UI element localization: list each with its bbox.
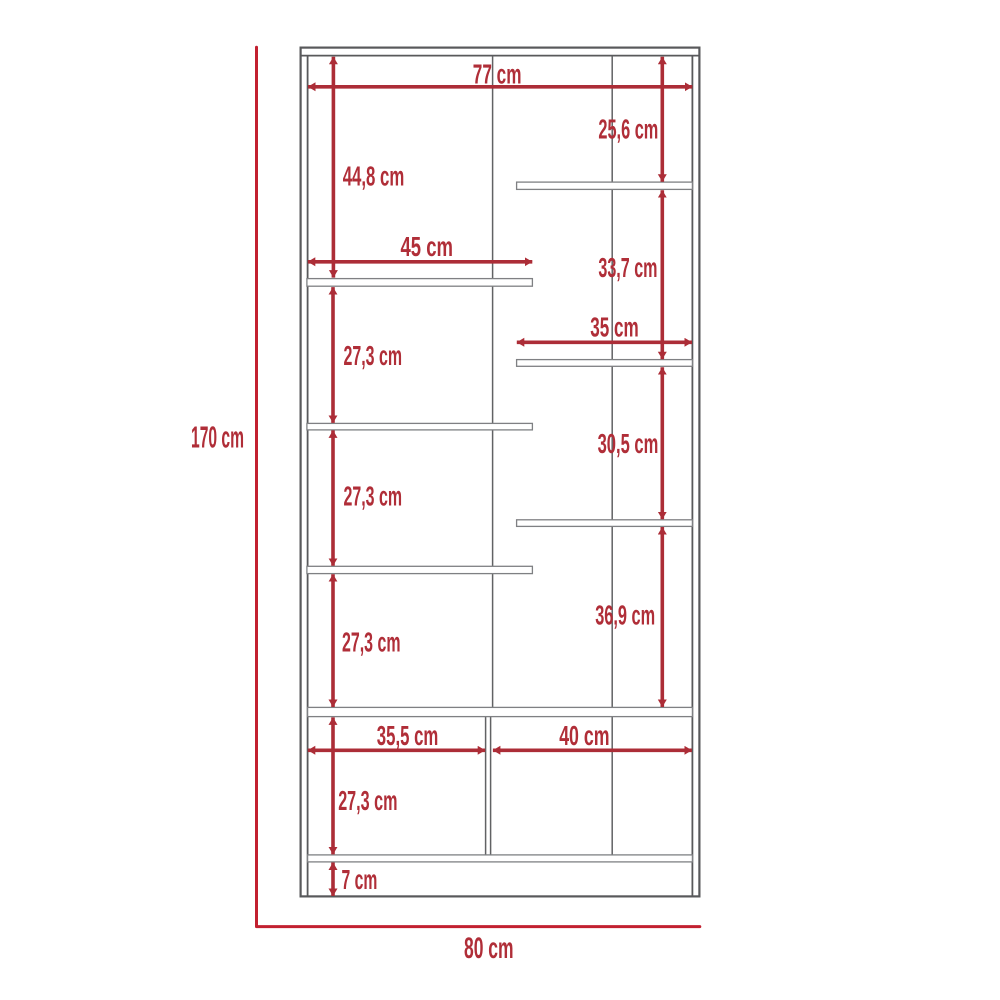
svg-text:45 cm: 45 cm (401, 231, 454, 262)
svg-text:40 cm: 40 cm (559, 720, 609, 751)
svg-text:35,5 cm: 35,5 cm (377, 720, 439, 751)
svg-text:25,6 cm: 25,6 cm (598, 113, 658, 144)
svg-text:27,3 cm: 27,3 cm (338, 785, 397, 816)
svg-text:77 cm: 77 cm (473, 58, 522, 89)
svg-text:7 cm: 7 cm (342, 864, 378, 895)
svg-text:27,3 cm: 27,3 cm (344, 481, 403, 512)
svg-text:33,7 cm: 33,7 cm (598, 252, 657, 283)
svg-text:30,5 cm: 30,5 cm (598, 428, 659, 459)
svg-text:36,9 cm: 36,9 cm (595, 599, 655, 630)
svg-text:35 cm: 35 cm (590, 312, 639, 343)
svg-text:27,3 cm: 27,3 cm (342, 627, 401, 658)
svg-text:27,3 cm: 27,3 cm (344, 340, 403, 371)
svg-text:80 cm: 80 cm (464, 932, 514, 965)
svg-text:44,8 cm: 44,8 cm (343, 161, 405, 192)
svg-text:170 cm: 170 cm (191, 421, 244, 455)
